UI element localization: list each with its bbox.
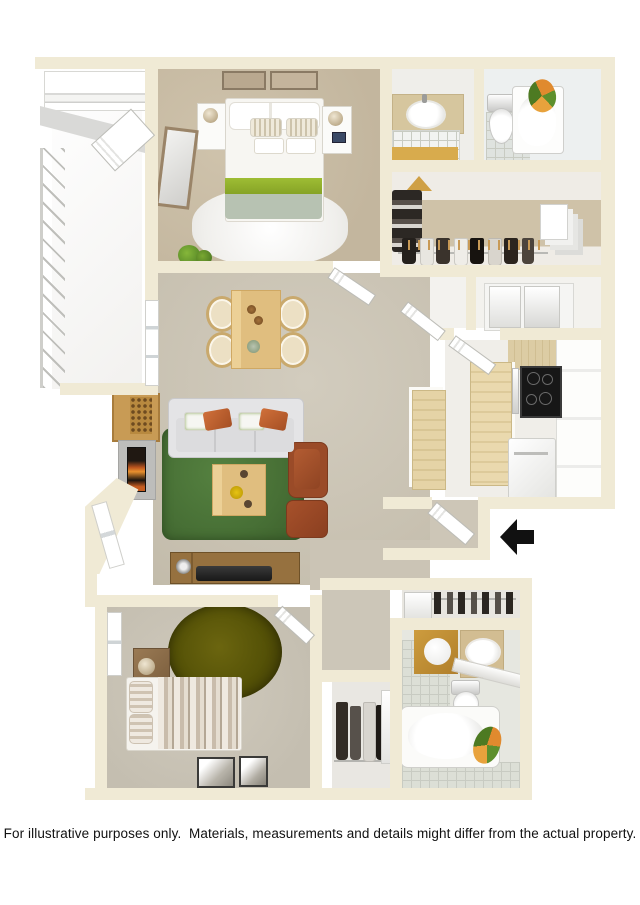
wall-bath-divider (474, 57, 484, 163)
hall-closet-cabinet (404, 592, 432, 620)
wine-cabinet-bottles (130, 397, 152, 434)
wall-entry-left (383, 497, 432, 509)
bath1-faucet (422, 94, 427, 103)
bath1-sink (406, 100, 446, 129)
wall-bath2-left (390, 618, 402, 800)
linen-box-2 (524, 286, 560, 328)
dining-table (231, 290, 281, 369)
dining-chair-3 (277, 296, 309, 332)
bedroom2-floor-art-2 (239, 756, 268, 787)
bed1-green-stripe (225, 178, 322, 194)
bedroom1-wall-art-right (270, 71, 318, 90)
wall-balcony-bottom (60, 383, 157, 395)
dining-table-bowl-2 (254, 316, 263, 325)
wall-hall-vert (466, 277, 476, 330)
bath1-gold-cabinet (392, 147, 458, 160)
nightstand-left-lamp (203, 108, 218, 123)
stove-handle (512, 368, 519, 414)
stove-cooktop (520, 366, 562, 418)
bed2-pillow-1 (129, 681, 153, 713)
dining-chair-4 (277, 332, 309, 368)
coat-closet-garment-1 (336, 702, 348, 760)
wall-entry-bottom (383, 548, 490, 560)
tv-speaker (176, 559, 191, 574)
disclaimer-text: For illustrative purposes only. Material… (0, 826, 640, 841)
stove-burner-3 (526, 394, 537, 405)
bed2-pillow-2 (129, 714, 153, 744)
coffee-table-item-2 (244, 500, 252, 508)
balcony-window-ledge (44, 71, 146, 111)
wall-bath2-top (390, 618, 532, 630)
coffee-table-bowl (230, 486, 243, 499)
bed1-sage-blanket (225, 194, 322, 219)
wall-kitchen-top-right (500, 328, 615, 340)
kitchen-island-counter (470, 362, 512, 486)
kitchen-right-cabinets (556, 340, 602, 500)
wall-block-right (520, 578, 532, 800)
bed1-striped-pillow-right (286, 118, 318, 137)
nightstand-right-lamp (328, 111, 343, 126)
bedroom2-floor-art-1 (197, 757, 235, 788)
block-hall-floor (322, 590, 390, 682)
bath2-round-mirror (424, 638, 451, 665)
wall-bed2-left (95, 607, 107, 800)
coffee-table-item-1 (240, 470, 248, 478)
wall-bed2-top (85, 595, 278, 607)
bed2-striped-duvet (158, 677, 240, 749)
stove-burner-1 (527, 372, 540, 385)
dining-table-bowl-1 (247, 305, 256, 314)
bed1-accent-pillow-left (254, 138, 284, 154)
balcony-railing (40, 148, 65, 388)
armchair-cushion (294, 449, 320, 489)
wall-bath-bottom (380, 160, 615, 172)
refrigerator-handle (514, 452, 548, 455)
stove-burner-4 (539, 392, 552, 405)
dining-table-plant (247, 340, 260, 353)
television (196, 566, 272, 581)
hall-closet-clothes (434, 592, 516, 614)
closet1-shelf-stack-1 (540, 204, 568, 240)
linen-box-1 (489, 286, 521, 328)
wall-bottom (85, 788, 532, 800)
wall-kitchen-bottom (478, 497, 615, 509)
kitchen-bar-counter (412, 390, 446, 490)
bed1-accent-pillow-right (286, 138, 316, 154)
closet1-hangers (400, 240, 540, 250)
wall-coat-closet-top (320, 670, 402, 682)
dining-window (145, 300, 159, 386)
wall-right-upper (601, 57, 615, 509)
stove-burner-2 (542, 374, 553, 385)
wall-left-jut (85, 560, 97, 607)
bed1-striped-pillow-left (250, 118, 282, 137)
wall-bed1-bottom (145, 261, 333, 273)
refrigerator (508, 438, 556, 500)
nightstand-right-book (332, 132, 346, 143)
bedroom2-lamp (138, 658, 155, 675)
bedroom1-wall-art-left (222, 71, 266, 90)
entry-arrow-icon (500, 517, 534, 557)
wall-block-top (320, 578, 532, 590)
ottoman (286, 500, 328, 538)
wall-closet1-bottom (380, 265, 615, 277)
coat-closet-garment-3 (363, 702, 376, 762)
bedroom2-window (107, 612, 122, 676)
wall-bed2-right (310, 595, 322, 800)
coat-closet-garment-2 (350, 706, 361, 760)
wall-top (35, 57, 615, 69)
floor-plan-image: For illustrative purposes only. Material… (0, 0, 640, 905)
